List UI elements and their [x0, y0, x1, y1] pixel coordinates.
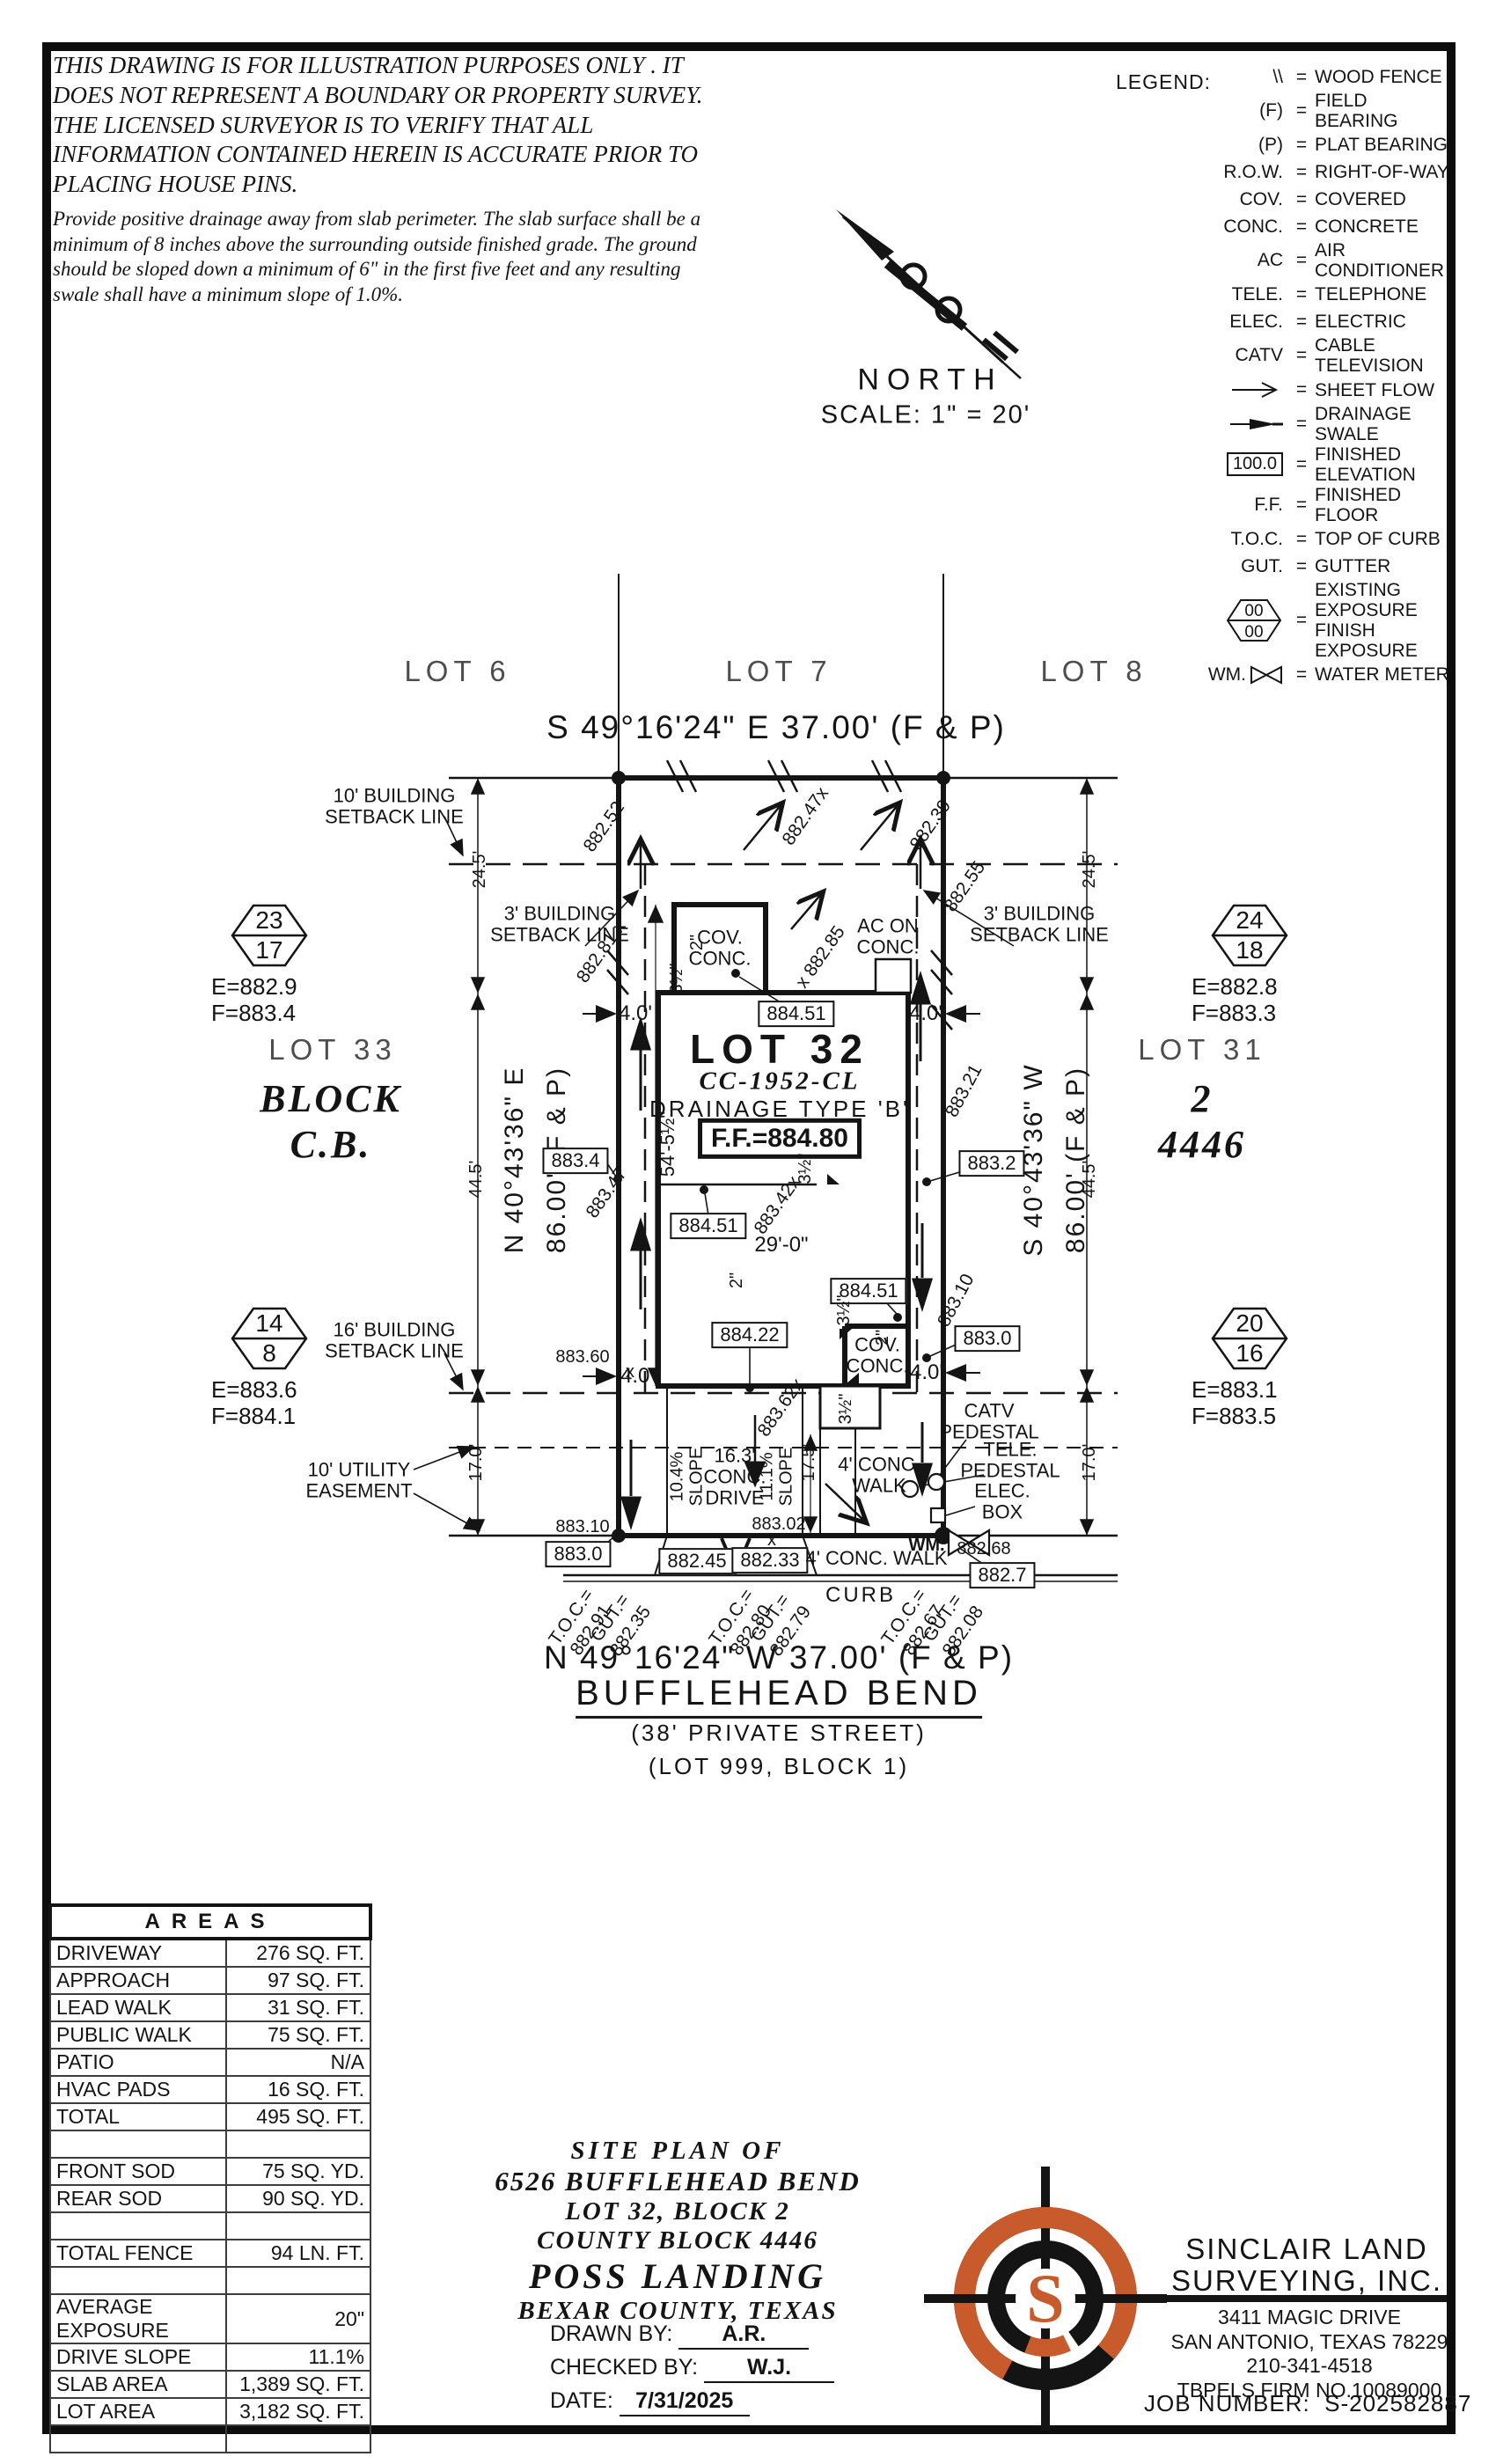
- areas-table-row: HVAC PADS16 SQ. FT.: [50, 2076, 370, 2103]
- firm-phone: 210-341-4518: [1162, 2354, 1457, 2379]
- areas-table: AREAS DRIVEWAY276 SQ. FT.APPROACH97 SQ. …: [48, 1903, 372, 2453]
- plan-label: 2": [728, 1272, 747, 1288]
- firm-name-line2: SURVEYING, INC.: [1162, 2265, 1452, 2297]
- plan-label: 3½": [796, 1154, 816, 1184]
- plan-label: 44.5': [467, 1161, 487, 1199]
- plan-label: 17.0': [467, 1444, 487, 1482]
- area-label: FRONT SOD: [50, 2158, 226, 2185]
- area-value: 11.1%: [226, 2343, 370, 2371]
- checked-by-label: CHECKED BY:: [550, 2355, 698, 2380]
- plan-label: 3' BUILDING SETBACK LINE: [970, 903, 1109, 945]
- plan-label: 3½": [837, 1394, 856, 1425]
- areas-table-row: [50, 2212, 370, 2240]
- plan-label: 24.5': [471, 851, 490, 889]
- exposure-marker: 2418: [1207, 898, 1292, 977]
- area-label: TOTAL: [50, 2103, 226, 2130]
- area-label: TOTAL FENCE: [50, 2240, 226, 2267]
- firm-street: 3411 MAGIC DRIVE: [1162, 2306, 1457, 2330]
- job-number-label: JOB NUMBER:: [1144, 2390, 1310, 2416]
- exposure-marker: 2016: [1207, 1302, 1292, 1380]
- svg-text:18: 18: [1236, 936, 1263, 964]
- areas-table-row: [50, 2425, 370, 2453]
- svg-text:24: 24: [1236, 906, 1263, 934]
- scale-label: SCALE: 1" = 20': [821, 401, 1030, 429]
- plan-label: COV. CONC.: [847, 1334, 909, 1376]
- plan-label: LOT 6: [404, 656, 510, 687]
- plan-label: 883.0: [545, 1541, 611, 1567]
- area-value: [226, 2212, 370, 2240]
- bearing-rear: S 49°16'24" E 37.00' (F & P): [546, 710, 1006, 745]
- plan-label: 4446: [1158, 1124, 1246, 1166]
- plan-label: 883.02: [752, 1515, 805, 1535]
- plan-label: 882.68: [957, 1540, 1010, 1559]
- area-value: 90 SQ. YD.: [226, 2185, 370, 2212]
- area-value: 94 LN. FT.: [226, 2240, 370, 2267]
- area-label: HVAC PADS: [50, 2076, 226, 2103]
- area-label: LOT AREA: [50, 2398, 226, 2425]
- lot-32-label: LOT 32: [690, 1028, 869, 1072]
- area-value: [226, 2130, 370, 2158]
- exposure-values: E=882.9 F=883.4: [211, 974, 297, 1027]
- plan-label: 884.51: [670, 1213, 746, 1239]
- plan-label: LOT 31: [1138, 1034, 1265, 1066]
- areas-table-row: TOTAL495 SQ. FT.: [50, 2103, 370, 2130]
- plan-label: CC-1952-CL: [699, 1067, 860, 1095]
- drawn-by-label: DRAWN BY:: [550, 2321, 672, 2347]
- areas-table-row: SLAB AREA1,389 SQ. FT.: [50, 2371, 370, 2398]
- finished-floor-value: F.F.=884.80: [698, 1118, 862, 1159]
- area-label: [50, 2267, 226, 2294]
- bearing-left: N 40°43'36" E: [501, 1067, 529, 1254]
- areas-table-row: LEAD WALK31 SQ. FT.: [50, 1994, 370, 2021]
- title-address: 6526 BUFFLEHEAD BEND: [493, 2166, 862, 2197]
- area-value: 276 SQ. FT.: [226, 1939, 370, 1967]
- svg-text:8: 8: [262, 1339, 276, 1367]
- area-label: LEAD WALK: [50, 1994, 226, 2021]
- plan-label: 4.0': [619, 1002, 652, 1025]
- date-label: DATE:: [550, 2388, 613, 2414]
- area-value: 16 SQ. FT.: [226, 2076, 370, 2103]
- plan-label: 4' CONC. WALK: [805, 1548, 947, 1569]
- svg-text:16: 16: [1236, 1339, 1263, 1367]
- job-number-value: S-202582887: [1324, 2390, 1471, 2416]
- exposure-marker: 148: [227, 1302, 312, 1380]
- plan-label: 883.4: [542, 1148, 608, 1174]
- plan-label: 44.5': [1081, 1161, 1100, 1199]
- plan-label: (LOT 999, BLOCK 1): [649, 1754, 909, 1778]
- plan-label: 3½": [835, 1295, 854, 1326]
- area-label: [50, 2212, 226, 2240]
- areas-table-row: LOT AREA3,182 SQ. FT.: [50, 2398, 370, 2425]
- area-label: PUBLIC WALK: [50, 2021, 226, 2049]
- bearing-front: N 49°16'24" W 37.00' (F & P): [544, 1640, 1014, 1676]
- plan-label: CATV PEDESTAL: [939, 1400, 1038, 1442]
- street-name: BUFFLEHEAD BEND: [576, 1675, 982, 1719]
- plan-label: 16' BUILDING SETBACK LINE: [325, 1319, 464, 1361]
- area-value: 20": [226, 2294, 370, 2343]
- plan-label: CURB: [825, 1584, 896, 1607]
- svg-text:17: 17: [255, 936, 282, 964]
- plan-label: 4.0': [910, 1361, 943, 1384]
- area-label: AVERAGE EXPOSURE: [50, 2294, 226, 2343]
- job-number: JOB NUMBER: S-202582887: [1144, 2390, 1461, 2417]
- plan-label: 883.10: [935, 1271, 979, 1330]
- svg-text:20: 20: [1236, 1309, 1263, 1337]
- area-value: [226, 2267, 370, 2294]
- plan-label: 3½": [668, 964, 687, 994]
- plan-label: 882.39: [906, 796, 955, 854]
- logo-letter: S: [1026, 2260, 1064, 2336]
- areas-table-row: [50, 2267, 370, 2294]
- title-county-block: COUNTY BLOCK 4446: [493, 2226, 862, 2255]
- area-value: 75 SQ. FT.: [226, 2021, 370, 2049]
- areas-table-row: PATION/A: [50, 2049, 370, 2076]
- area-label: APPROACH: [50, 1967, 226, 1994]
- plan-label: x 882.85: [793, 922, 850, 992]
- plan-label: 884.51: [758, 1001, 834, 1027]
- plan-label: 10.4% SLOPE: [668, 1448, 706, 1507]
- plan-label: 883.21: [942, 1061, 986, 1120]
- title-line: SITE PLAN OF: [493, 2137, 862, 2166]
- drawn-by-value: A.R.: [678, 2321, 809, 2350]
- firm-name-line1: SINCLAIR LAND: [1162, 2233, 1452, 2265]
- plan-label: 29'-0": [754, 1234, 808, 1257]
- area-label: SLAB AREA: [50, 2371, 226, 2398]
- area-value: [226, 2425, 370, 2453]
- plan-label: (38' PRIVATE STREET): [631, 1720, 927, 1745]
- area-value: 31 SQ. FT.: [226, 1994, 370, 2021]
- plan-label: 10' UTILITY EASEMENT: [305, 1459, 412, 1501]
- title-subdivision: POSS LANDING: [493, 2255, 862, 2297]
- plan-label: AC ON CONC.: [857, 915, 920, 957]
- plan-label: 11.1% SLOPE: [758, 1448, 796, 1507]
- plan-label: 2": [688, 935, 708, 950]
- areas-table-row: [50, 2130, 370, 2158]
- plan-label: 883.62x: [754, 1375, 808, 1441]
- plan-label: 883.10: [555, 1518, 609, 1537]
- area-label: [50, 2425, 226, 2453]
- area-label: PATIO: [50, 2049, 226, 2076]
- date-value: 7/31/2025: [620, 2388, 750, 2416]
- plan-label: C.B.: [290, 1124, 372, 1166]
- plan-label: LOT 33: [268, 1034, 396, 1066]
- plan-label: 54'-5½": [657, 1111, 678, 1177]
- areas-table-row: PUBLIC WALK75 SQ. FT.: [50, 2021, 370, 2049]
- plan-label: 882.52: [580, 798, 628, 856]
- plan-label: 2: [1192, 1078, 1214, 1120]
- firm-name: SINCLAIR LAND SURVEYING, INC.: [1162, 2233, 1452, 2298]
- area-value: N/A: [226, 2049, 370, 2076]
- area-label: REAR SOD: [50, 2185, 226, 2212]
- north-label: NORTH: [857, 364, 1002, 397]
- exposure-values: E=883.6 F=884.1: [211, 1377, 297, 1430]
- plan-label: 17.5': [800, 1444, 819, 1482]
- exposure-values: E=883.1 F=883.5: [1192, 1377, 1278, 1430]
- plan-label: 10' BUILDING SETBACK LINE: [325, 785, 464, 827]
- exposure-marker: 2317: [227, 898, 312, 977]
- svg-text:14: 14: [255, 1309, 282, 1337]
- area-label: DRIVE SLOPE: [50, 2343, 226, 2371]
- plan-label: TELE. PEDESTAL: [960, 1439, 1060, 1481]
- checked-by-value: W.J.: [704, 2355, 834, 2383]
- area-value: 1,389 SQ. FT.: [226, 2371, 370, 2398]
- areas-table-row: FRONT SOD75 SQ. YD.: [50, 2158, 370, 2185]
- areas-table-row: DRIVE SLOPE11.1%: [50, 2343, 370, 2371]
- sinclair-logo-icon: S: [924, 2167, 1167, 2431]
- plan-label: 882.7: [969, 1562, 1035, 1588]
- title-lot: LOT 32, BLOCK 2: [493, 2197, 862, 2226]
- plan-label: ELEC. BOX: [974, 1480, 1030, 1522]
- firm-address: 3411 MAGIC DRIVE SAN ANTONIO, TEXAS 7822…: [1162, 2306, 1457, 2402]
- firm-city: SAN ANTONIO, TEXAS 78229: [1162, 2330, 1457, 2355]
- plan-label: 884.22: [711, 1322, 788, 1348]
- area-value: 75 SQ. YD.: [226, 2158, 370, 2185]
- plan-label: 882.33: [731, 1547, 808, 1573]
- areas-table-row: DRIVEWAY276 SQ. FT.: [50, 1939, 370, 1967]
- areas-table-row: TOTAL FENCE94 LN. FT.: [50, 2240, 370, 2267]
- plan-label: 4' CONC. WALK: [838, 1454, 920, 1496]
- plan-label: LOT 8: [1040, 656, 1147, 687]
- exposure-values: E=882.8 F=883.3: [1192, 974, 1278, 1027]
- plan-label: LOT 7: [725, 656, 832, 687]
- plan-label: 17.0': [1081, 1444, 1100, 1482]
- areas-table-row: REAR SOD90 SQ. YD.: [50, 2185, 370, 2212]
- plan-label: 4.0': [909, 1002, 942, 1025]
- plan-label: 882.47x: [779, 784, 832, 849]
- plan-label: BLOCK: [260, 1078, 402, 1120]
- area-value: 495 SQ. FT.: [226, 2103, 370, 2130]
- plan-label: 883.2: [958, 1150, 1024, 1177]
- plan-label: 883.0: [954, 1325, 1020, 1352]
- area-value: 97 SQ. FT.: [226, 1967, 370, 1994]
- area-value: 3,182 SQ. FT.: [226, 2398, 370, 2425]
- areas-table-row: APPROACH97 SQ. FT.: [50, 1967, 370, 1994]
- plan-label: 24.5': [1081, 851, 1100, 889]
- title-block: SITE PLAN OF 6526 BUFFLEHEAD BEND LOT 32…: [493, 2137, 862, 2326]
- plan-label: 883.60: [555, 1348, 609, 1368]
- title-block-fields: DRAWN BY: A.R. CHECKED BY: W.J. DATE: 7/…: [550, 2321, 834, 2422]
- svg-text:23: 23: [255, 906, 282, 934]
- areas-table-title: AREAS: [50, 1905, 370, 1939]
- plan-label: 882.45: [658, 1548, 735, 1574]
- site-plan-page: THIS DRAWING IS FOR ILLUSTRATION PURPOSE…: [0, 0, 1496, 2464]
- plan-label: 4.0': [620, 1365, 654, 1388]
- areas-table-row: AVERAGE EXPOSURE20": [50, 2294, 370, 2343]
- area-label: [50, 2130, 226, 2158]
- area-label: DRIVEWAY: [50, 1939, 226, 1967]
